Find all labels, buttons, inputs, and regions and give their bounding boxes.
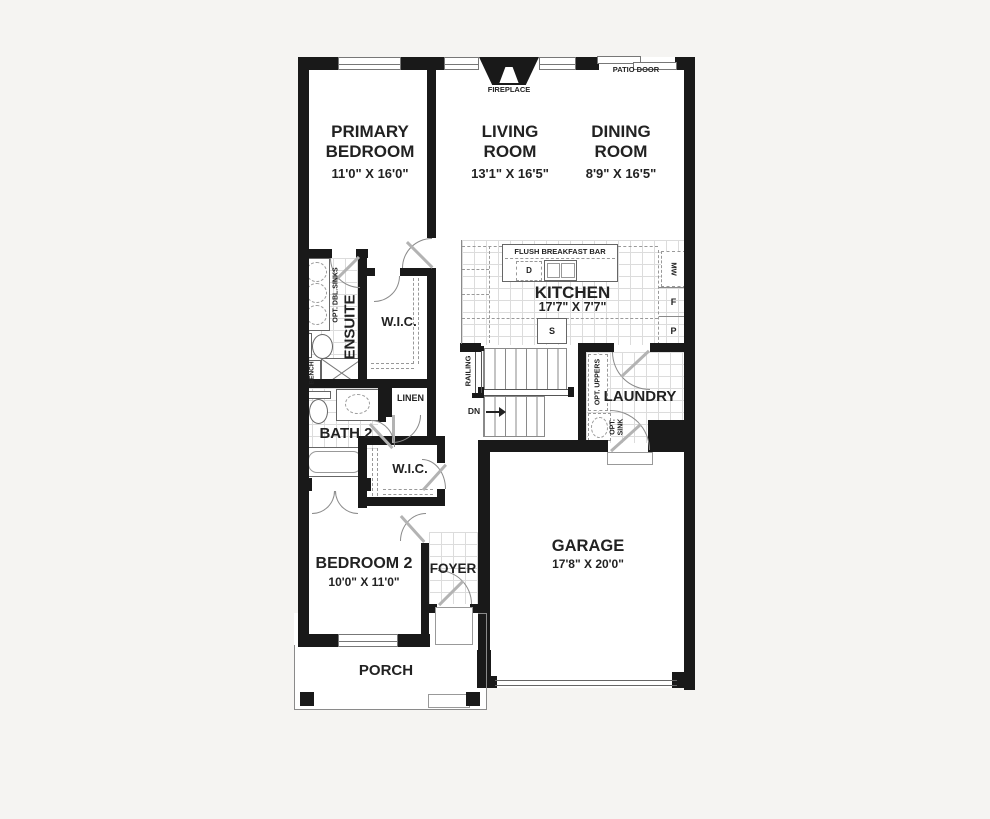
sink-oval-symbol — [306, 262, 327, 282]
handrail-cap — [568, 387, 574, 397]
wall — [298, 249, 332, 258]
fireplace-label: FIREPLACE — [477, 85, 541, 94]
opt-sink-basin — [591, 417, 608, 438]
floor-plan: PRIMARY BEDROOM 11'0" X 16'0" LIVING ROO… — [0, 0, 990, 819]
room-label-laundry: LAUNDRY — [593, 388, 687, 405]
toilet-symbol — [306, 391, 331, 399]
sink-oval-symbol — [306, 305, 327, 325]
down-arrow-head-icon — [499, 407, 506, 417]
porch-outline — [294, 709, 487, 710]
dim-label-living-room: 13'1" X 16'5" — [452, 166, 568, 181]
opt-uppers-label: OPT. UPPERS — [595, 359, 602, 405]
closet-rod — [372, 448, 378, 496]
wall — [477, 676, 497, 688]
fridge-label: F — [661, 288, 686, 316]
dim-label-dining-room: 8'9" X 16'5" — [563, 166, 679, 181]
railing-symbol — [475, 348, 482, 394]
room-label-bedroom2: BEDROOM 2 — [303, 555, 425, 573]
opt-dbl-sinks-label: OPT. DBL.SINKS — [333, 267, 340, 322]
porch-step — [428, 694, 470, 708]
pantry-label: P — [661, 317, 686, 345]
wall — [437, 436, 445, 463]
porch-outline — [478, 613, 487, 614]
toilet-symbol — [309, 399, 328, 424]
dishwasher-label: D — [516, 261, 542, 281]
porch-outline — [486, 613, 487, 710]
bathtub-inner — [308, 451, 362, 473]
counter-edge — [618, 246, 658, 247]
room-label-wic-primary: W.I.C. — [372, 314, 426, 329]
wall — [427, 57, 436, 238]
room-label-foyer: FOYER — [427, 561, 479, 576]
wall — [578, 343, 586, 443]
wall — [298, 379, 436, 388]
stove-label: S — [537, 318, 567, 344]
wall — [378, 388, 386, 422]
down-arrow-icon — [486, 411, 499, 413]
counter-edge — [462, 294, 489, 295]
dim-label-primary-bedroom: 11'0" X 16'0" — [308, 166, 432, 181]
sink-basin — [561, 263, 575, 278]
front-door-recess — [435, 607, 473, 645]
stairs-lower-flight — [483, 396, 545, 437]
wall — [385, 388, 392, 417]
stairs-upper-flight — [483, 348, 567, 390]
wall — [648, 420, 684, 442]
dim-label-bedroom2: 10'0" X 11'0" — [303, 575, 425, 589]
toilet-symbol — [312, 334, 333, 359]
dim-label-kitchen: 17'7" X 7'7" — [520, 300, 625, 314]
kitchen-hall-divider — [461, 240, 462, 344]
window — [539, 57, 576, 70]
window — [338, 57, 401, 70]
window — [444, 57, 479, 70]
counter-edge — [658, 250, 659, 345]
garage-door — [495, 680, 677, 686]
porch-post — [466, 692, 480, 706]
dim-label-garage: 17'8" X 20'0" — [538, 557, 638, 571]
railing-cap — [472, 393, 484, 398]
porch-outline — [294, 645, 295, 710]
counter-edge — [489, 246, 490, 343]
counter-edge — [462, 246, 502, 247]
stair-handrail — [481, 389, 571, 396]
room-label-garage: GARAGE — [538, 537, 638, 556]
wall — [460, 343, 481, 352]
room-label-linen: LINEN — [392, 393, 429, 403]
room-label-bath2: BATH 2 — [304, 425, 388, 442]
railing-label: RAILING — [464, 356, 473, 387]
sink-oval-symbol — [345, 394, 370, 414]
wall — [398, 634, 430, 647]
flush-breakfast-bar-label: FLUSH BREAKFAST BAR — [504, 247, 616, 256]
wall — [478, 440, 608, 452]
room-label-primary-bedroom: PRIMARY BEDROOM — [320, 122, 420, 161]
room-label-dining-room: DINING ROOM — [581, 122, 661, 161]
patio-door-label: PATIO DOOR — [607, 65, 665, 74]
wall — [427, 268, 436, 443]
sink-oval-symbol — [306, 283, 327, 303]
closet-rod — [383, 489, 433, 495]
wall — [367, 268, 375, 276]
down-label: DN — [464, 406, 484, 416]
wall — [401, 57, 445, 70]
porch-post — [300, 692, 314, 706]
wall — [358, 478, 371, 491]
closet-rod — [371, 363, 414, 369]
room-label-porch: PORCH — [348, 662, 424, 679]
island-divider — [505, 258, 615, 259]
room-label-living-room: LIVING ROOM — [470, 122, 550, 161]
microwave-label: MW — [670, 262, 679, 275]
sink-basin — [547, 263, 560, 278]
wall — [400, 268, 436, 276]
laundry-step — [607, 452, 653, 465]
ensuite-label: ENSUITE — [342, 294, 359, 359]
wall — [578, 343, 614, 352]
wall — [684, 57, 695, 690]
bench-label: BENCH — [309, 361, 316, 384]
wall — [298, 634, 338, 647]
wall — [358, 497, 445, 506]
opt-sink-label: OPT. SINK — [609, 412, 624, 442]
wall — [298, 478, 312, 491]
window — [338, 634, 398, 647]
counter-edge — [462, 269, 489, 270]
room-label-wic-bedroom2: W.I.C. — [380, 461, 440, 476]
wall — [478, 440, 490, 658]
